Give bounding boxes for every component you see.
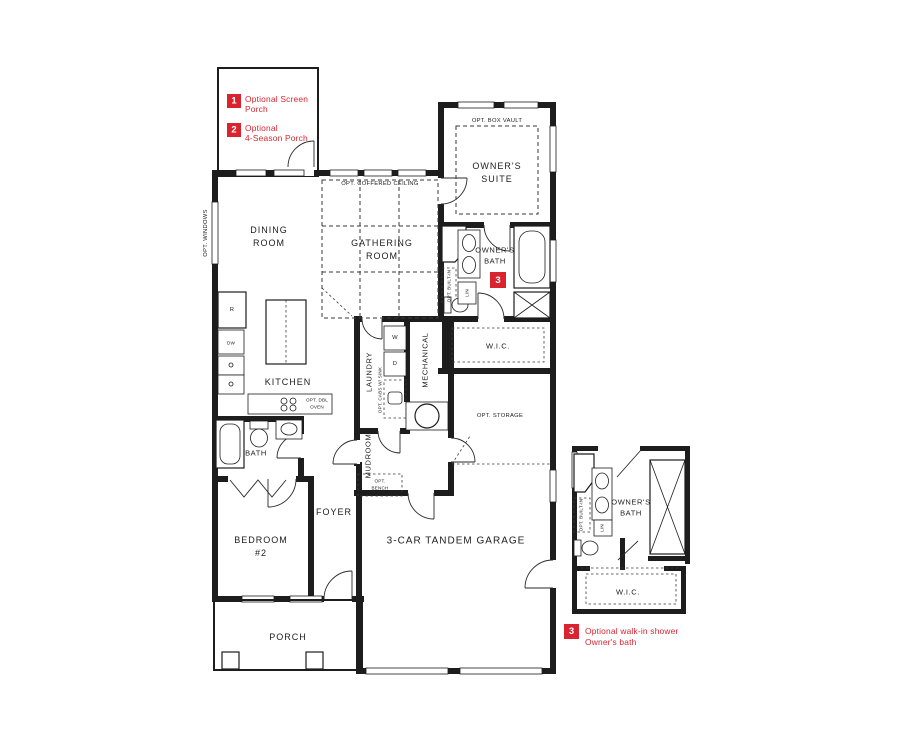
bedroom2-label: BEDROOM <box>234 535 288 545</box>
sink-drain <box>229 382 233 386</box>
legend1-text2: Porch <box>245 104 268 114</box>
bath2-tub-basin <box>220 424 240 464</box>
sink-icon <box>463 235 476 252</box>
legend1-text: Optional Screen <box>245 94 308 104</box>
sink-icon <box>281 423 297 435</box>
closet-bifold-doors <box>230 480 286 497</box>
gathering-label: GATHERING <box>351 238 413 248</box>
dishwasher-label: DW <box>227 341 236 346</box>
coffered-note: OPT. COFFERED CEILING <box>341 181 419 187</box>
garage-label: 3-CAR TANDEM GARAGE <box>387 536 526 547</box>
corner-pantry-dashed <box>322 288 352 316</box>
bedroom2-label2: #2 <box>255 548 267 558</box>
dining-label2: ROOM <box>253 238 285 248</box>
burner-icon <box>281 398 287 404</box>
inset-bath-label2: BATH <box>620 509 642 518</box>
sink-icon <box>463 257 476 274</box>
room-labels: OPT. BOX VAULT OWNER'S SUITE DINING ROOM… <box>203 118 525 642</box>
badge-3-number: 3 <box>495 275 500 286</box>
toilet-tank <box>574 540 581 556</box>
legend-top: 1 Optional Screen Porch 2 Optional 4-Sea… <box>227 94 308 143</box>
water-heater-icon <box>415 404 439 428</box>
mechanical-label: MECHANICAL <box>421 332 430 387</box>
sink-icon <box>596 473 609 489</box>
owners-bath-label2: BATH <box>484 257 506 266</box>
porch-column <box>222 652 239 669</box>
inset-corner-shower <box>574 454 594 492</box>
owners-tub-basin <box>519 231 545 283</box>
mudroom-label: MUDROOM <box>364 434 373 479</box>
box-vault-note: OPT. BOX VAULT <box>472 118 523 124</box>
opt-cabs-note: OPT. CABS W/ SINK <box>378 366 383 413</box>
foyer-label: FOYER <box>316 507 352 517</box>
fridge-label: R <box>230 307 235 313</box>
inset-linen-label: LIN <box>600 524 605 532</box>
legend2-number: 2 <box>231 125 236 136</box>
optional-porch-outline <box>218 68 318 176</box>
porch-column <box>306 652 323 669</box>
dryer-label: D <box>393 361 398 367</box>
floorplan-page: OPT. BOX VAULT OWNER'S SUITE DINING ROOM… <box>0 0 900 750</box>
sink-drain <box>229 363 233 367</box>
toilet-tank <box>250 421 268 429</box>
opt-windows-note: OPT. WINDOWS <box>203 209 209 256</box>
opt-bench-note: OPT. <box>374 479 385 484</box>
burner-icon <box>290 398 296 404</box>
burner-icon <box>290 405 296 411</box>
owners-suite-label2: SUITE <box>481 174 513 184</box>
opt-laundry-sink <box>388 392 402 404</box>
washer-label: W <box>392 335 398 341</box>
legend-bottom: 3 Optional walk-in shower Owner's bath <box>564 624 679 647</box>
legend3-text2: Owner's bath <box>585 637 637 647</box>
plan-badge-3: 3 <box>490 272 506 288</box>
toilet-icon <box>251 429 268 447</box>
legend3-number: 3 <box>569 626 574 637</box>
inset-owners-bath: OWNER'S BATH OPT. BUILT-IN LIN W.I.C. <box>572 446 690 614</box>
inset-wic-label: W.I.C. <box>616 588 640 597</box>
opt-oven-note: OPT. DBL <box>306 398 328 403</box>
tandem-dashed-line <box>452 436 550 464</box>
laundry-label: LAUNDRY <box>365 352 374 392</box>
dining-label: DINING <box>250 225 288 235</box>
owners-bath-label: OWNER'S <box>475 246 514 255</box>
legend2-text2: 4-Season Porch <box>245 133 308 143</box>
floorplan-drawing: OPT. BOX VAULT OWNER'S SUITE DINING ROOM… <box>0 0 900 750</box>
legend3-text: Optional walk-in shower <box>585 626 679 636</box>
coffered-ceiling-grid <box>322 180 438 318</box>
burner-icon <box>281 405 287 411</box>
inset-builtin-note: OPT. BUILT-IN <box>579 499 584 532</box>
gathering-label2: ROOM <box>366 251 398 261</box>
inset-bath-label: OWNER'S <box>611 498 650 507</box>
toilet-icon <box>582 541 598 555</box>
opt-oven-note2: OVEN <box>310 405 324 410</box>
legend2-text: Optional <box>245 123 278 133</box>
linen-label: LIN <box>465 289 470 297</box>
opt-bench-note2: BENCH <box>371 486 388 491</box>
owners-suite-label: OWNER'S <box>472 161 521 171</box>
porch-label: PORCH <box>269 632 307 642</box>
sink-icon <box>596 497 609 513</box>
legend1-number: 1 <box>231 96 237 107</box>
opt-storage-note: OPT. STORAGE <box>477 413 523 419</box>
opt-builtin-note: OPT. BUILT-IN <box>447 270 452 303</box>
bath2-label: BATH <box>245 449 267 458</box>
kitchen-label: KITCHEN <box>265 377 312 387</box>
fixtures <box>216 226 550 669</box>
wic-label: W.I.C. <box>486 342 510 351</box>
